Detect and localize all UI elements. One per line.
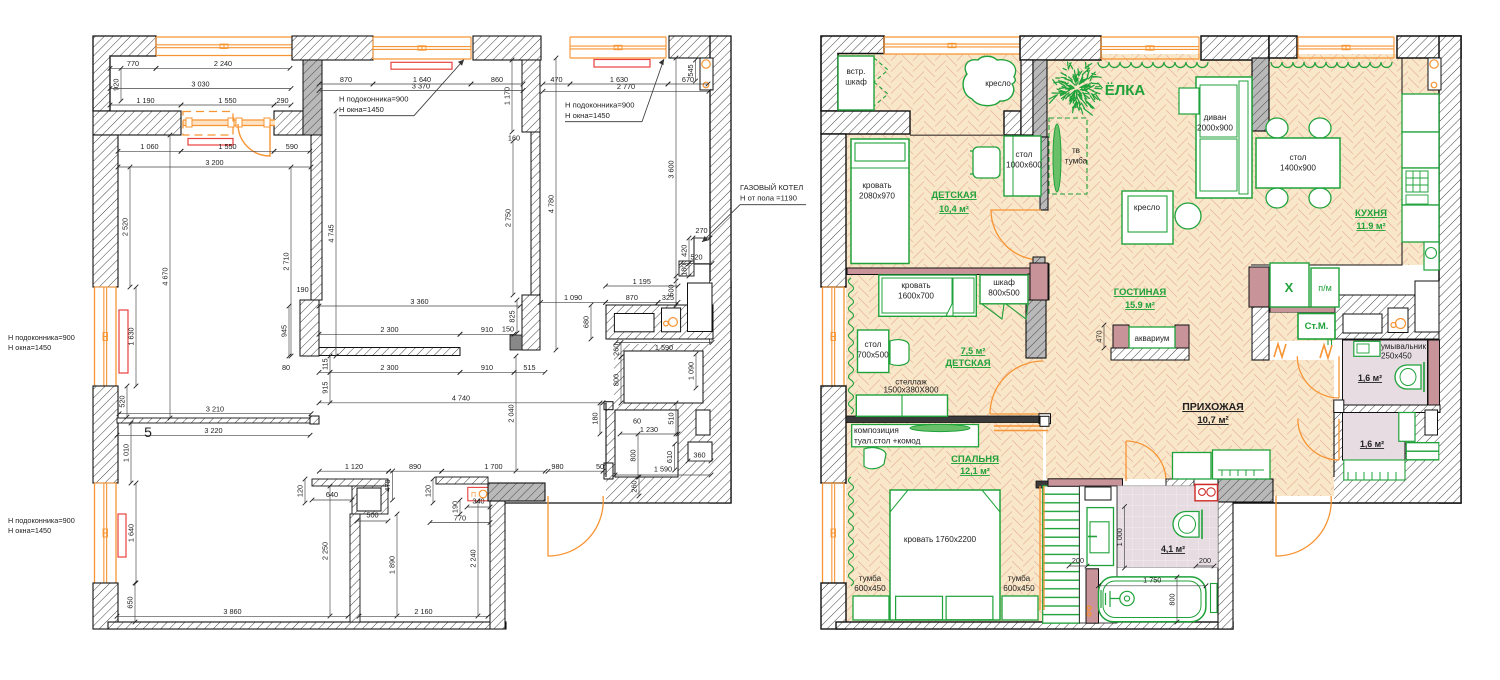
svg-text:910: 910 — [481, 325, 493, 334]
svg-text:1 630: 1 630 — [127, 327, 136, 345]
svg-text:920: 920 — [112, 79, 121, 91]
svg-text:545: 545 — [686, 64, 695, 76]
svg-text:800: 800 — [612, 374, 621, 386]
svg-text:770: 770 — [127, 59, 139, 68]
svg-text:800: 800 — [629, 449, 638, 461]
svg-text:ГОСТИНАЯ: ГОСТИНАЯ — [1114, 287, 1167, 298]
svg-text:600х450: 600х450 — [1003, 584, 1035, 593]
svg-text:610: 610 — [665, 451, 674, 463]
svg-text:4,1 м²: 4,1 м² — [1161, 544, 1185, 554]
svg-text:4 780: 4 780 — [547, 195, 556, 213]
svg-text:700х500: 700х500 — [857, 351, 889, 360]
svg-text:200: 200 — [1072, 556, 1084, 565]
svg-text:1,6 м²: 1,6 м² — [1358, 373, 1382, 383]
svg-text:3 360: 3 360 — [410, 297, 428, 306]
svg-text:640: 640 — [326, 490, 338, 499]
svg-text:Н окна=1450: Н окна=1450 — [339, 105, 384, 114]
svg-text:50: 50 — [596, 462, 604, 471]
svg-text:260: 260 — [630, 480, 639, 492]
svg-text:2000х900: 2000х900 — [1197, 124, 1233, 133]
svg-text:520: 520 — [690, 253, 702, 262]
svg-text:890: 890 — [409, 462, 421, 471]
svg-text:тумба: тумба — [1065, 157, 1088, 166]
svg-text:кровать: кровать — [901, 281, 930, 290]
svg-text:915: 915 — [321, 382, 330, 394]
svg-text:3 210: 3 210 — [206, 405, 224, 414]
svg-text:1 000: 1 000 — [1115, 528, 1124, 546]
svg-text:Х: Х — [1285, 280, 1294, 295]
svg-text:190: 190 — [451, 501, 460, 513]
svg-text:ЁЛКА: ЁЛКА — [1105, 82, 1146, 99]
svg-text:860: 860 — [491, 75, 503, 84]
svg-text:1 550: 1 550 — [218, 96, 236, 105]
svg-text:п/м: п/м — [1318, 283, 1332, 293]
svg-text:2 710: 2 710 — [282, 252, 291, 270]
svg-text:15.9 м²: 15.9 м² — [1125, 300, 1155, 310]
svg-text:Ст.М.: Ст.М. — [1305, 321, 1329, 332]
svg-text:910: 910 — [481, 363, 493, 372]
svg-text:1 590: 1 590 — [655, 343, 673, 352]
svg-text:1000х600: 1000х600 — [1006, 161, 1042, 170]
svg-text:1 195: 1 195 — [633, 277, 651, 286]
svg-text:1 120: 1 120 — [345, 462, 363, 471]
svg-text:3 370: 3 370 — [412, 81, 430, 90]
svg-text:аквариум: аквариум — [1135, 334, 1170, 343]
svg-text:1 230: 1 230 — [640, 425, 658, 434]
svg-text:680: 680 — [582, 316, 591, 328]
svg-text:4 670: 4 670 — [161, 267, 170, 285]
svg-text:1 550: 1 550 — [218, 142, 236, 151]
svg-text:325: 325 — [662, 293, 674, 302]
svg-text:кровать 1760х2200: кровать 1760х2200 — [904, 535, 977, 544]
svg-text:туал.стол +комод: туал.стол +комод — [854, 437, 921, 446]
svg-text:420: 420 — [680, 245, 689, 257]
svg-text:Н окна=1450: Н окна=1450 — [8, 526, 51, 535]
svg-text:ПРИХОЖАЯ: ПРИХОЖАЯ — [1182, 401, 1243, 413]
svg-text:КУХНЯ: КУХНЯ — [1355, 208, 1387, 219]
svg-text:600х450: 600х450 — [854, 584, 886, 593]
svg-text:515: 515 — [523, 363, 535, 372]
svg-text:10,7 м²: 10,7 м² — [1197, 415, 1228, 426]
svg-text:510: 510 — [667, 412, 676, 424]
svg-text:кресло: кресло — [1134, 203, 1161, 212]
svg-text:2 250: 2 250 — [321, 542, 330, 560]
svg-text:1 890: 1 890 — [388, 556, 397, 574]
svg-text:диван: диван — [1204, 113, 1227, 122]
svg-text:1 090: 1 090 — [687, 362, 696, 380]
svg-text:Н подоконника=900: Н подоконника=900 — [8, 516, 75, 525]
svg-text:470: 470 — [1095, 330, 1104, 342]
svg-text:7,5 м²: 7,5 м² — [961, 346, 986, 356]
svg-text:870: 870 — [626, 293, 638, 302]
svg-text:11.9 м²: 11.9 м² — [1356, 221, 1385, 231]
svg-text:2080х970: 2080х970 — [859, 192, 895, 201]
svg-text:1 190: 1 190 — [136, 96, 154, 105]
svg-text:360: 360 — [693, 451, 705, 460]
svg-text:Н подоконника=900: Н подоконника=900 — [565, 101, 635, 110]
svg-text:стол: стол — [865, 340, 882, 349]
svg-text:650: 650 — [126, 596, 135, 608]
svg-text:260: 260 — [612, 344, 621, 356]
svg-text:120: 120 — [296, 485, 305, 497]
svg-text:200: 200 — [1199, 556, 1211, 565]
svg-text:945: 945 — [280, 325, 289, 337]
svg-text:870: 870 — [340, 75, 352, 84]
svg-text:3 220: 3 220 — [204, 426, 222, 435]
svg-text:5: 5 — [144, 424, 152, 440]
svg-text:3 030: 3 030 — [191, 79, 209, 88]
svg-text:шкаф: шкаф — [845, 78, 867, 87]
svg-text:180: 180 — [591, 412, 600, 424]
svg-text:шкаф: шкаф — [993, 278, 1015, 287]
svg-text:590: 590 — [286, 142, 298, 151]
svg-text:470: 470 — [550, 75, 562, 84]
svg-text:60: 60 — [633, 417, 641, 426]
svg-text:500: 500 — [366, 511, 378, 520]
svg-text:4 740: 4 740 — [452, 394, 470, 403]
svg-text:825: 825 — [508, 310, 517, 322]
svg-text:1500х380Х800: 1500х380Х800 — [883, 386, 939, 395]
svg-text:2 240: 2 240 — [469, 549, 478, 567]
svg-text:тумба: тумба — [1008, 574, 1031, 583]
svg-text:980: 980 — [551, 462, 563, 471]
svg-text:12,1 м²: 12,1 м² — [960, 466, 990, 476]
svg-text:ДЕТСКАЯ: ДЕТСКАЯ — [931, 190, 976, 201]
svg-text:СПАЛЬНЯ: СПАЛЬНЯ — [951, 454, 999, 465]
svg-text:80: 80 — [282, 363, 290, 372]
svg-text:2 750: 2 750 — [504, 209, 513, 227]
svg-text:2 040: 2 040 — [507, 404, 516, 422]
svg-text:кресло: кресло — [985, 79, 1011, 88]
svg-text:520: 520 — [118, 395, 127, 407]
svg-text:Н подоконника=900: Н подоконника=900 — [8, 333, 75, 342]
svg-text:1600х700: 1600х700 — [898, 292, 934, 301]
svg-text:умывальник: умывальник — [1381, 342, 1426, 351]
svg-text:1 590: 1 590 — [654, 465, 672, 474]
svg-text:кровать: кровать — [862, 181, 891, 190]
svg-text:1,6 м²: 1,6 м² — [1360, 439, 1384, 449]
svg-text:120: 120 — [424, 485, 433, 497]
svg-text:770: 770 — [454, 513, 466, 522]
svg-text:ГАЗОВЫЙ КОТЕЛ: ГАЗОВЫЙ КОТЕЛ — [740, 183, 803, 192]
svg-text:1 700: 1 700 — [484, 462, 502, 471]
svg-text:стол: стол — [1016, 150, 1033, 159]
svg-text:470: 470 — [383, 479, 392, 491]
svg-text:800х500: 800х500 — [988, 289, 1020, 298]
svg-text:2 300: 2 300 — [380, 363, 398, 372]
svg-text:150: 150 — [502, 325, 514, 334]
svg-text:Н от пола =1190: Н от пола =1190 — [740, 194, 797, 203]
svg-text:2 300: 2 300 — [380, 325, 398, 334]
svg-text:стол: стол — [1290, 153, 1307, 162]
svg-text:Н окна=1450: Н окна=1450 — [8, 343, 51, 352]
svg-text:ДЕТСКАЯ: ДЕТСКАЯ — [945, 358, 990, 369]
svg-text:160: 160 — [508, 134, 520, 143]
svg-text:3 600: 3 600 — [667, 160, 676, 178]
svg-text:3 860: 3 860 — [223, 607, 241, 616]
svg-text:1 010: 1 010 — [122, 444, 131, 462]
svg-text:800: 800 — [1168, 593, 1177, 605]
svg-text:290: 290 — [276, 96, 288, 105]
svg-text:190: 190 — [297, 285, 309, 294]
svg-text:1 060: 1 060 — [140, 142, 158, 151]
svg-text:2 160: 2 160 — [414, 607, 432, 616]
svg-text:1400х900: 1400х900 — [1280, 164, 1316, 173]
svg-text:1 090: 1 090 — [564, 293, 582, 302]
svg-text:180: 180 — [680, 264, 689, 276]
svg-text:тумба: тумба — [859, 574, 882, 583]
svg-text:Н окна=1450: Н окна=1450 — [565, 111, 610, 120]
svg-text:1 640: 1 640 — [127, 524, 136, 542]
svg-text:1 170: 1 170 — [503, 87, 512, 105]
svg-text:10,4 м²: 10,4 м² — [939, 204, 969, 214]
svg-text:2 240: 2 240 — [214, 59, 232, 68]
svg-text:2 770: 2 770 — [617, 82, 635, 91]
svg-text:тв: тв — [1072, 146, 1080, 155]
svg-text:1 750: 1 750 — [1143, 576, 1161, 585]
svg-text:Н подоконника=900: Н подоконника=900 — [339, 95, 409, 104]
svg-text:270: 270 — [695, 226, 707, 235]
svg-text:встр.: встр. — [847, 67, 866, 76]
svg-text:115: 115 — [321, 358, 330, 370]
svg-text:2 520: 2 520 — [121, 218, 130, 236]
svg-text:3 200: 3 200 — [205, 158, 223, 167]
svg-text:4 745: 4 745 — [327, 224, 336, 242]
svg-text:композиция: композиция — [854, 426, 899, 435]
svg-text:250х450: 250х450 — [1381, 352, 1412, 361]
